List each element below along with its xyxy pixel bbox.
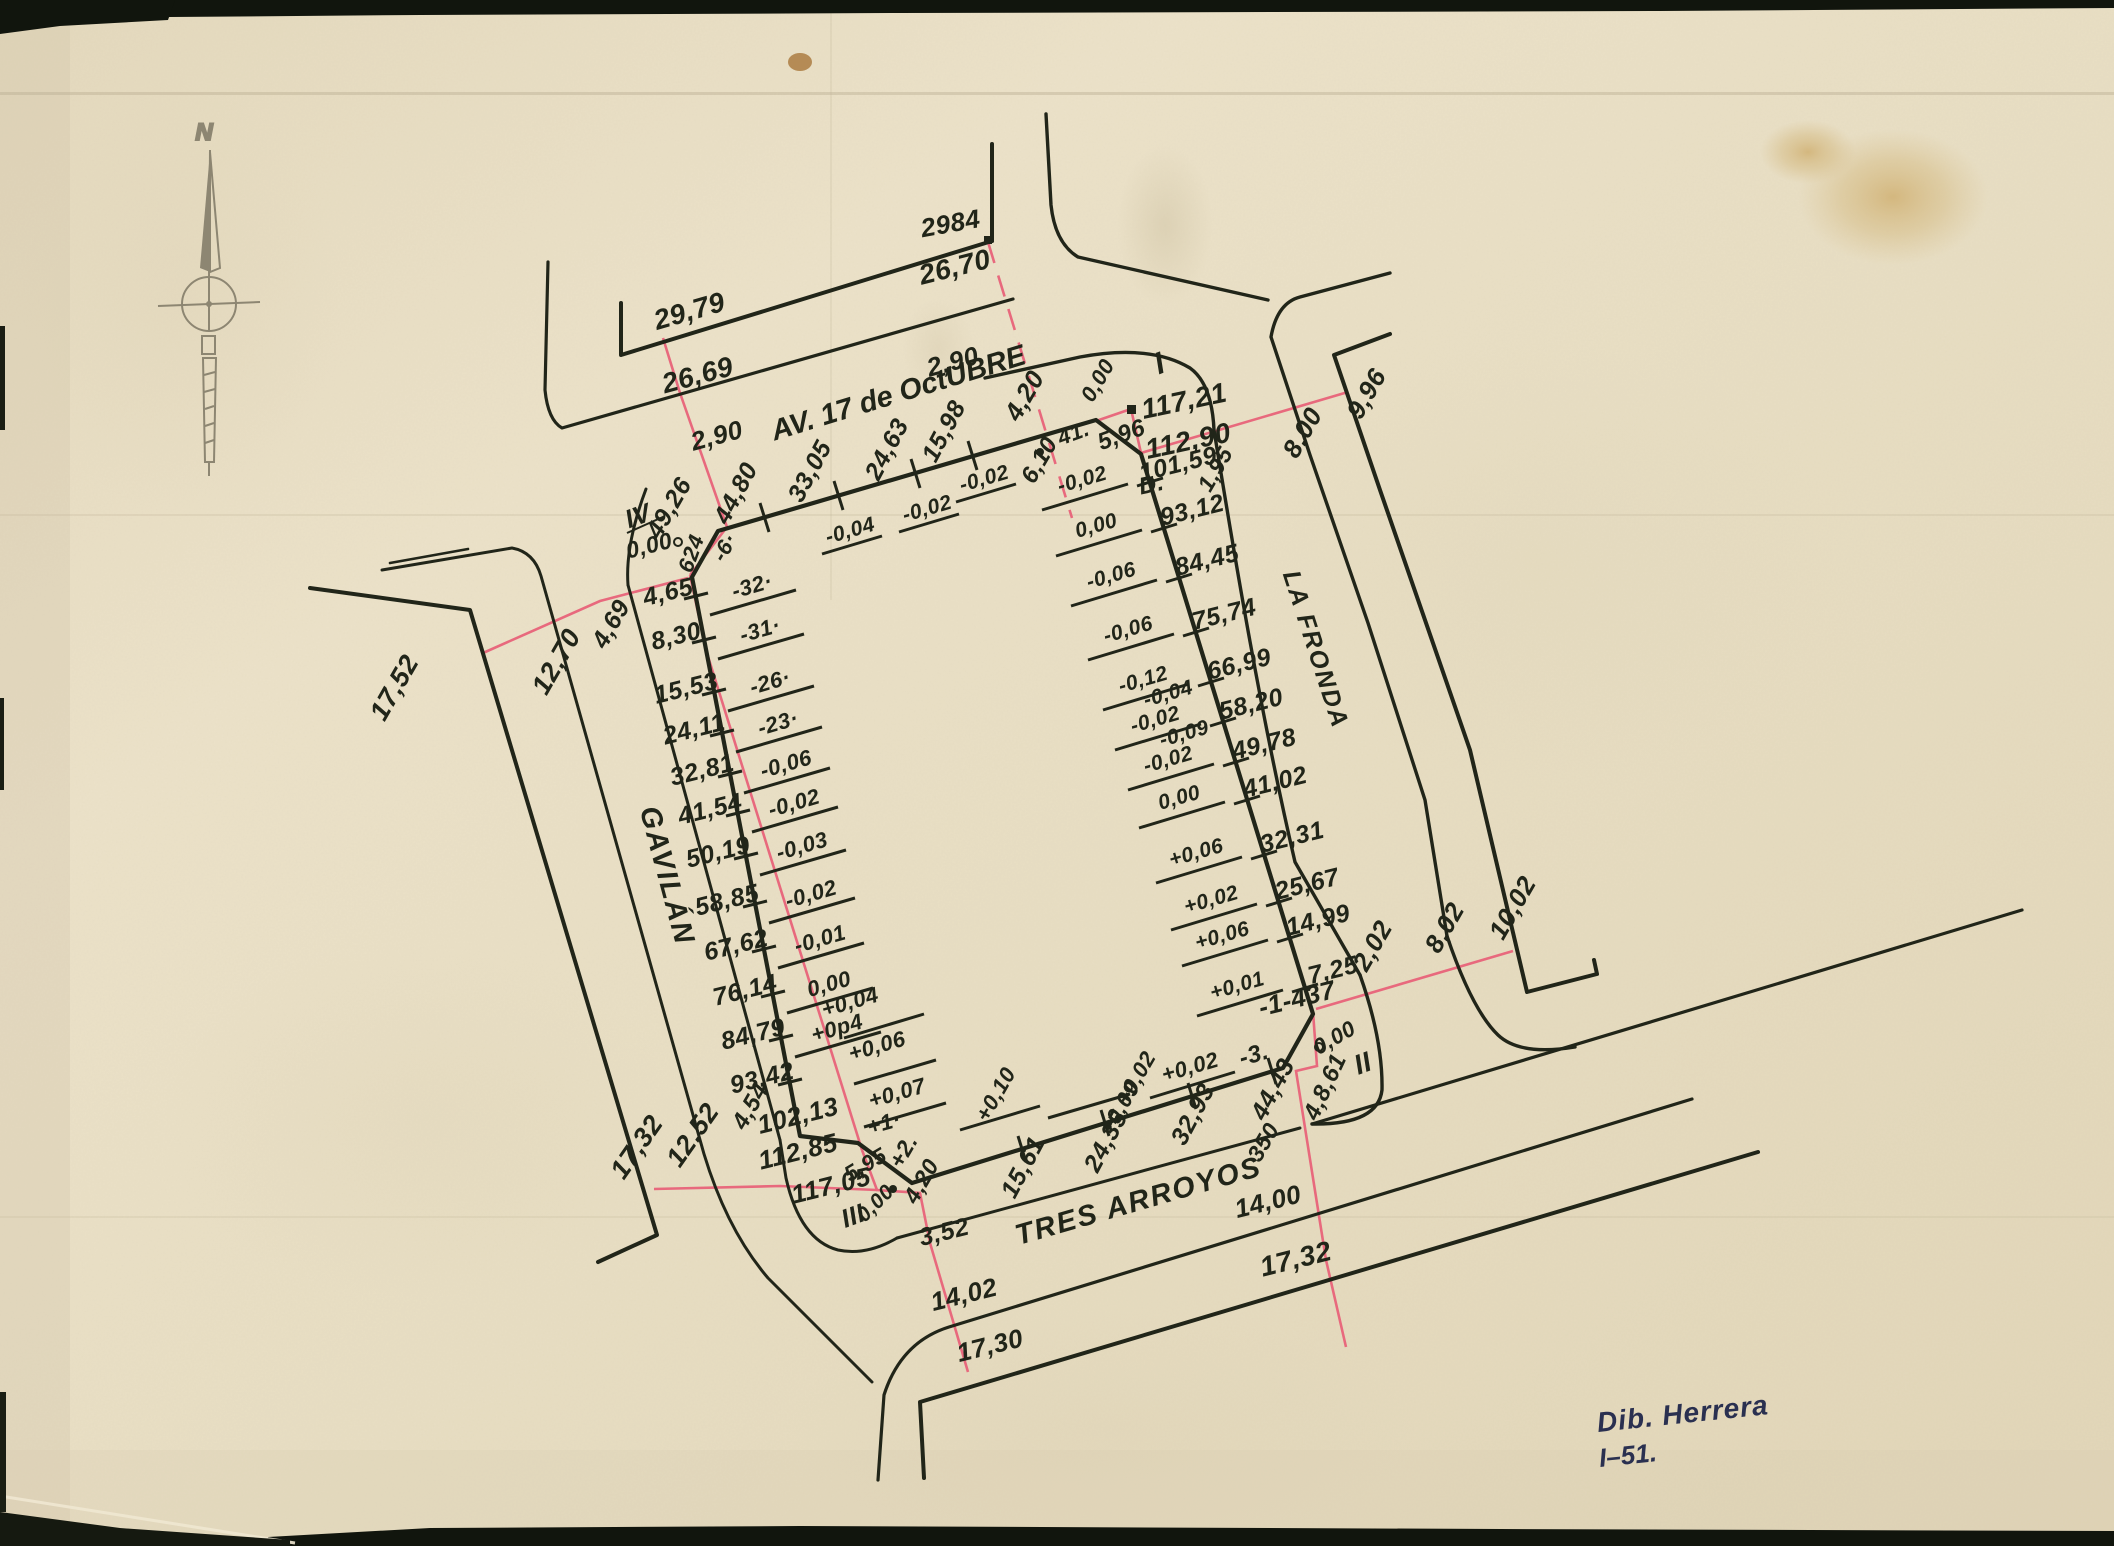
svg-text:I–51.: I–51. bbox=[1597, 1437, 1658, 1473]
svg-text:N: N bbox=[195, 119, 213, 146]
